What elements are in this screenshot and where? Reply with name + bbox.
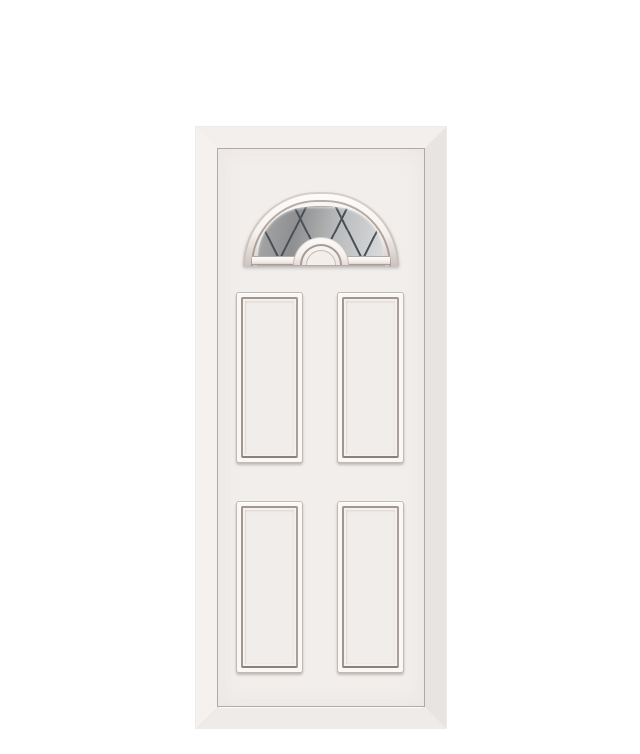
- panel-moulding: [342, 506, 399, 668]
- product-image: [0, 0, 640, 754]
- panel-moulding: [342, 297, 399, 458]
- door-frame: [196, 127, 446, 728]
- door-leaf: [218, 149, 424, 706]
- panel-face: [346, 510, 395, 664]
- panel-moulding: [241, 506, 298, 668]
- door-panel-bottom-right: [337, 501, 404, 673]
- panel-face: [245, 301, 294, 454]
- fanlight: [243, 192, 399, 266]
- door-panel-top-left: [236, 292, 303, 463]
- fanlight-hub: [293, 237, 349, 265]
- door-panel-top-right: [337, 292, 404, 463]
- panel-moulding: [241, 297, 298, 458]
- panel-face: [346, 301, 395, 454]
- panel-face: [245, 510, 294, 664]
- door-panel-bottom-left: [236, 501, 303, 673]
